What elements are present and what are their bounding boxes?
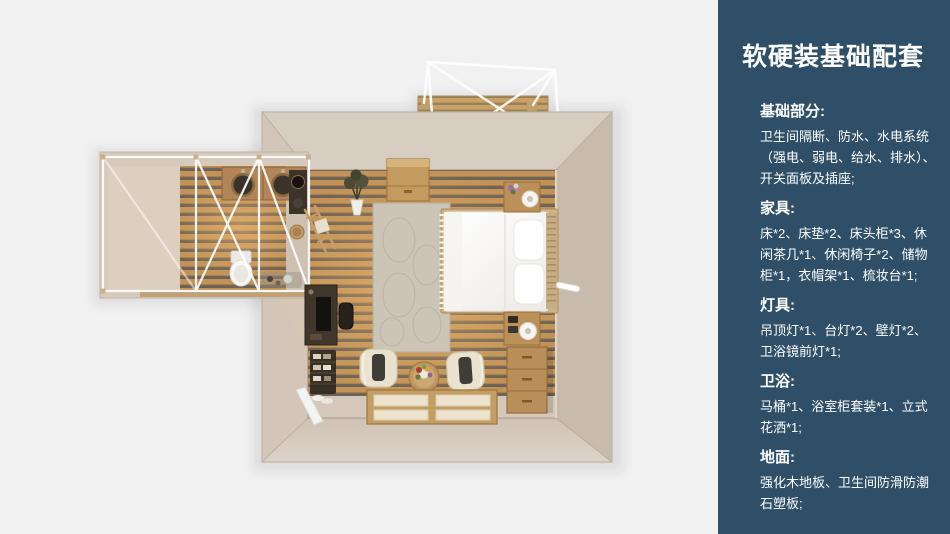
section-lighting-body: 吊顶灯*1、台灯*2、壁灯*2、 卫浴镜前灯*1; <box>760 320 938 362</box>
section-furniture: 家具: 床*2、床垫*2、床头柜*3、休 闲茶几*1、休闲椅子*2、储物 柜*1… <box>760 199 938 286</box>
section-basics: 基础部分: 卫生间隔断、防水、水电系统 （强电、弱电、给水、排水）、 开关面板及… <box>760 102 938 189</box>
section-flooring-heading: 地面: <box>760 448 938 468</box>
section-flooring: 地面: 强化木地板、卫生间防滑防潮 石塑板; <box>760 448 938 514</box>
section-lighting: 灯具: 吊顶灯*1、台灯*2、壁灯*2、 卫浴镜前灯*1; <box>760 296 938 362</box>
section-basics-body: 卫生间隔断、防水、水电系统 （强电、弱电、给水、排水）、 开关面板及插座; <box>760 126 938 189</box>
slide: 软硬装基础配套 基础部分: 卫生间隔断、防水、水电系统 （强电、弱电、给水、排水… <box>0 0 950 534</box>
section-bathroom-body: 马桶*1、浴室柜套装*1、立式 花洒*1; <box>760 396 938 438</box>
nightstand-bottom <box>504 312 540 345</box>
section-flooring-body: 强化木地板、卫生间防滑防潮 石塑板; <box>760 472 938 514</box>
section-bathroom: 卫浴: 马桶*1、浴室柜套装*1、立式 花洒*1; <box>760 372 938 438</box>
section-furniture-body: 床*2、床垫*2、床头柜*3、休 闲茶几*1、休闲椅子*2、储物 柜*1，衣帽架… <box>760 223 938 286</box>
shower-set <box>260 272 302 288</box>
section-basics-heading: 基础部分: <box>760 102 938 122</box>
section-furniture-heading: 家具: <box>760 199 938 219</box>
floorplan-svg <box>0 0 718 534</box>
section-bathroom-heading: 卫浴: <box>760 372 938 392</box>
platform-bed <box>367 390 497 424</box>
lounge-chair-left <box>360 349 397 387</box>
storage-cabinet <box>387 159 429 201</box>
desk <box>305 285 337 345</box>
lounge-chair-right <box>446 351 486 391</box>
dresser <box>507 347 553 413</box>
floorplan-render <box>0 0 718 534</box>
section-lighting-heading: 灯具: <box>760 296 938 316</box>
nightstand-top <box>504 182 540 212</box>
rug <box>373 203 450 352</box>
desk-stool <box>339 303 353 329</box>
sidebar-title: 软硬装基础配套 <box>742 42 938 72</box>
spec-sidebar: 软硬装基础配套 基础部分: 卫生间隔断、防水、水电系统 （强电、弱电、给水、排水… <box>718 0 950 534</box>
bed <box>441 209 558 313</box>
